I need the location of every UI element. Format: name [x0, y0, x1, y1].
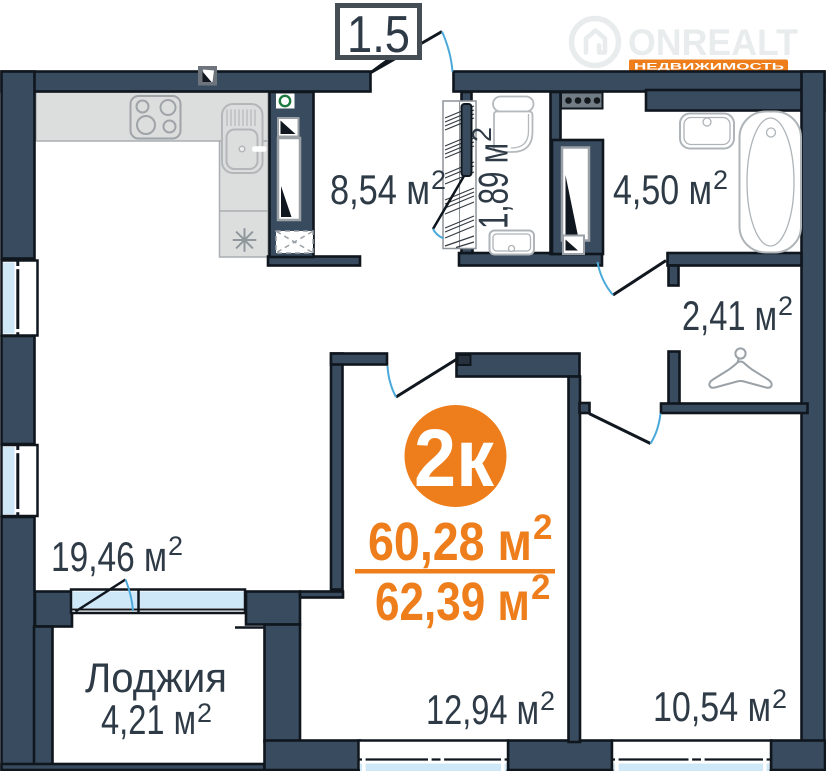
- svg-text:Лоджия: Лоджия: [85, 654, 227, 701]
- svg-text:ONREALT: ONREALT: [628, 22, 798, 63]
- svg-text:2: 2: [531, 568, 550, 607]
- svg-text:НЕДВИЖИМОСТЬ: НЕДВИЖИМОСТЬ: [634, 62, 785, 72]
- svg-text:62,39 м: 62,39 м: [375, 572, 530, 632]
- svg-text:19,46 м: 19,46 м: [51, 533, 167, 580]
- svg-text:4,50 м: 4,50 м: [613, 166, 712, 213]
- svg-text:2: 2: [533, 508, 552, 547]
- svg-text:1.5: 1.5: [347, 6, 410, 64]
- svg-text:2к: 2к: [414, 413, 495, 504]
- svg-text:2: 2: [540, 686, 555, 716]
- svg-text:10,54 м: 10,54 м: [653, 683, 771, 730]
- svg-text:12,94 м: 12,94 м: [426, 686, 539, 733]
- svg-text:2: 2: [168, 531, 183, 561]
- svg-text:8,54 м: 8,54 м: [330, 166, 430, 213]
- svg-text:2: 2: [197, 698, 212, 728]
- svg-text:2: 2: [778, 291, 793, 321]
- svg-text:1,89 м: 1,89 м: [470, 143, 517, 229]
- svg-text:2: 2: [713, 165, 728, 195]
- svg-text:4,21 м: 4,21 м: [101, 696, 196, 743]
- svg-text:2: 2: [772, 684, 787, 714]
- svg-text:2: 2: [431, 165, 446, 195]
- svg-text:2: 2: [467, 127, 497, 142]
- svg-text:60,28 м: 60,28 м: [368, 512, 532, 572]
- svg-text:2,41 м: 2,41 м: [682, 292, 777, 339]
